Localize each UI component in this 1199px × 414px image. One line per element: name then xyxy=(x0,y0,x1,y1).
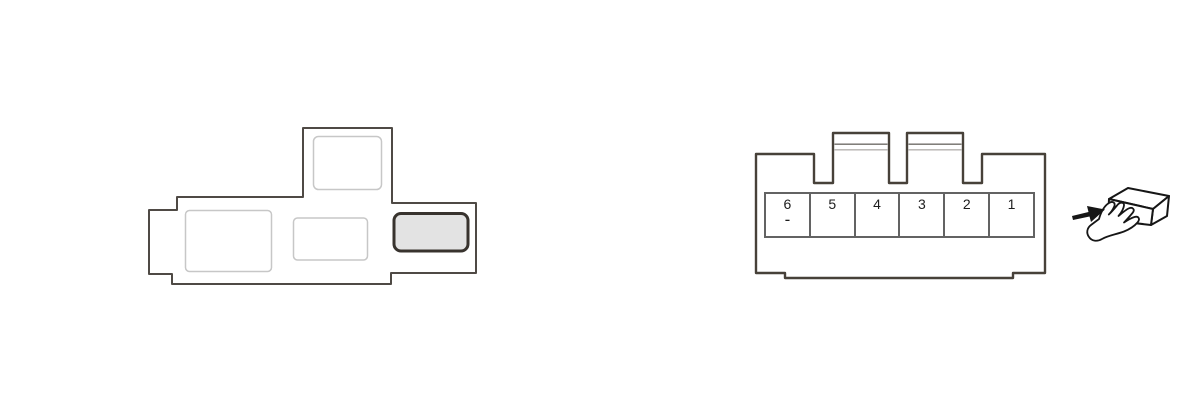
pin-cell-4: 4 xyxy=(854,194,899,236)
pin-number: 2 xyxy=(963,197,971,211)
component-slot-left xyxy=(186,211,272,272)
component-slot-top xyxy=(314,137,382,190)
pin-number: 6 xyxy=(784,197,792,211)
pin-cell-6: 6 - xyxy=(766,194,809,236)
pin-cell-1: 1 xyxy=(988,194,1033,236)
component-slot-center xyxy=(294,218,368,260)
pin-cell-5: 5 xyxy=(809,194,854,236)
pin-cell-2: 2 xyxy=(943,194,988,236)
pin-number: 1 xyxy=(1008,197,1016,211)
pin-polarity-sign: - xyxy=(785,216,791,224)
pin-number: 3 xyxy=(918,197,926,211)
pin-number: 5 xyxy=(828,197,836,211)
connector-pin-row: 6 - 5 4 3 2 1 xyxy=(764,192,1035,238)
component-location-diagram xyxy=(149,128,476,284)
wiring-diagram-canvas: 6 - 5 4 3 2 1 xyxy=(0,0,1199,414)
component-slot-highlighted xyxy=(394,214,468,252)
pin-number: 4 xyxy=(873,197,881,211)
hand-holding-connector-icon xyxy=(1072,182,1182,246)
pin-cell-3: 3 xyxy=(898,194,943,236)
